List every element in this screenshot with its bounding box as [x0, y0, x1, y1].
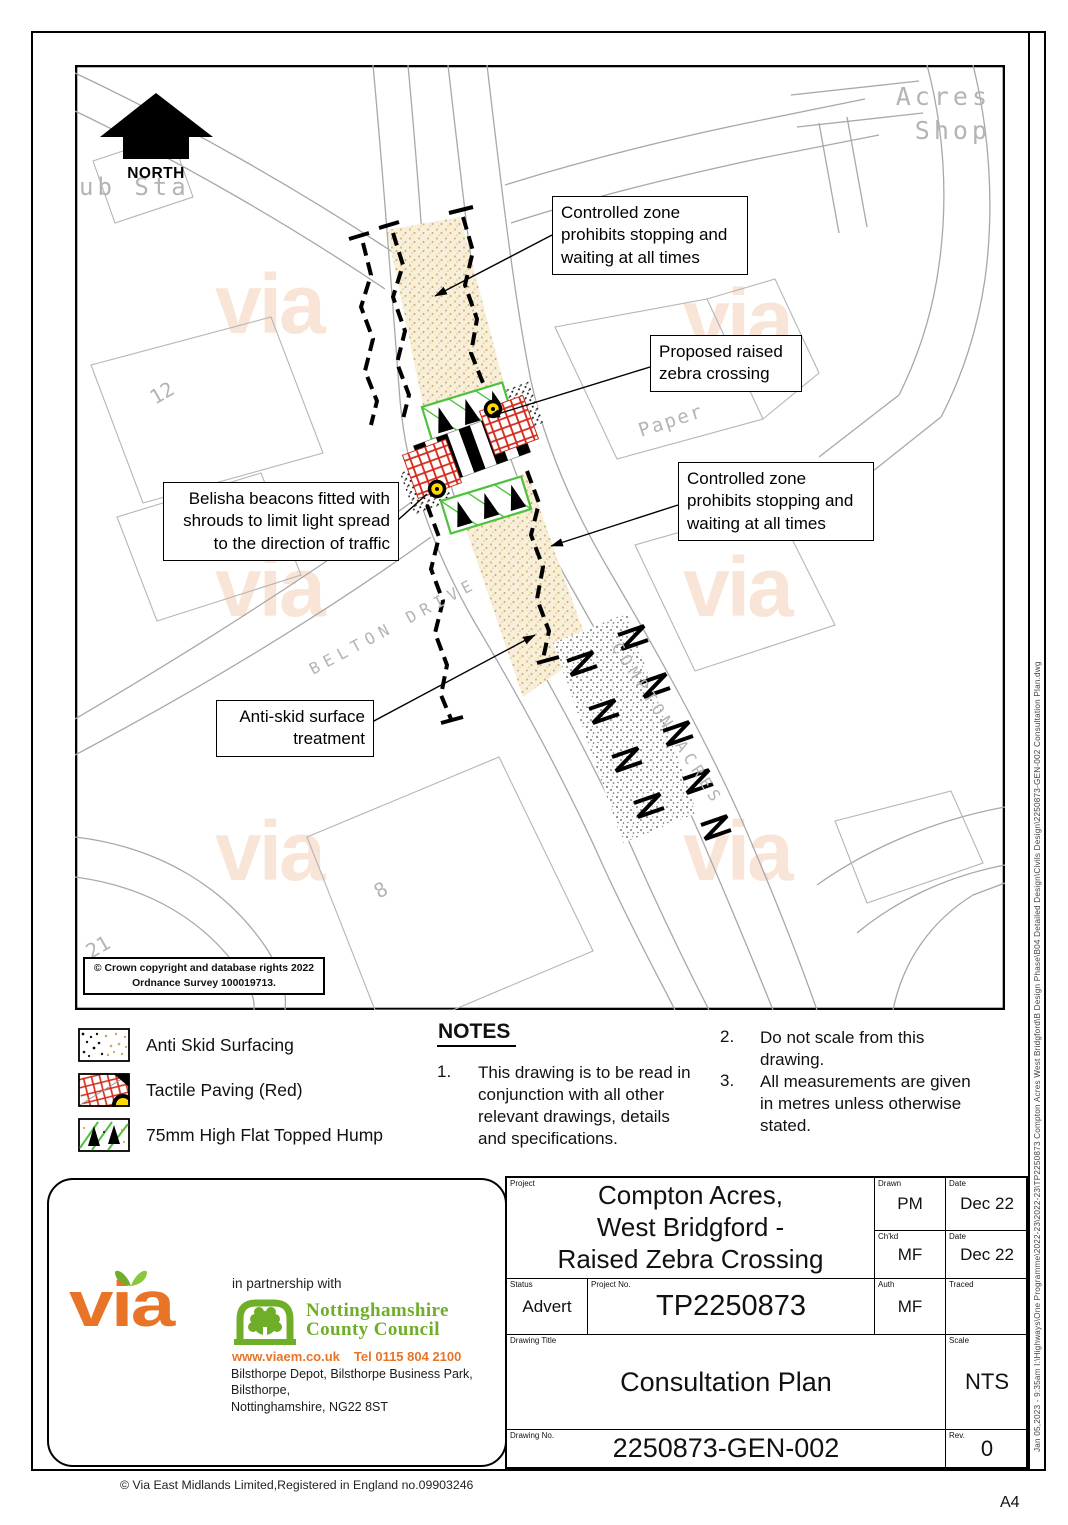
title-block-table: Project Compton Acres, West Bridgford - … [505, 1176, 1028, 1469]
flat-top-hump-swatch [78, 1118, 130, 1152]
via-leaf-icon [113, 1264, 149, 1288]
checked-date-cell: Date Dec 22 [945, 1230, 1028, 1278]
legend-label-tactile: Tactile Paving (Red) [146, 1080, 303, 1101]
scale-cell: Scale NTS [945, 1334, 1028, 1429]
address-block: Bilsthorpe Depot, Bilsthorpe Business Pa… [231, 1366, 505, 1415]
checked-cell: Ch'kd MF [874, 1230, 945, 1278]
os-copyright-line2: Ordnance Survey 100019713. [86, 976, 322, 991]
council-name-line2: County Council [306, 1319, 440, 1341]
status-cell: Status Advert [507, 1278, 587, 1334]
note-2-text: Do not scale from this drawing. [760, 1027, 986, 1071]
note-1-text: This drawing is to be read in conjunctio… [478, 1062, 700, 1150]
map-label-acres-2: Shop [915, 116, 991, 145]
drawn-cell: Drawn PM [874, 1178, 945, 1230]
checked-value: MF [875, 1231, 945, 1278]
auth-cell: Auth MF [874, 1278, 945, 1334]
drawn-date-cell: Date Dec 22 [945, 1178, 1028, 1230]
svg-text:via: via [683, 804, 795, 898]
drawn-date-value: Dec 22 [946, 1178, 1028, 1230]
partnership-text: in partnership with [232, 1276, 342, 1291]
status-value: Advert [507, 1279, 587, 1334]
drawing-no-cell: Drawing No. 2250873-GEN-002 [507, 1429, 945, 1467]
sheet-side-strip-line [1028, 31, 1030, 1471]
note-1-number: 1. [437, 1062, 451, 1082]
legend-item-anti-skid: Anti Skid Surfacing [78, 1028, 294, 1062]
note-3-text: All measurements are given in metres unl… [760, 1071, 986, 1137]
auth-value: MF [875, 1279, 945, 1334]
map-label-acres-1: Acres [896, 82, 991, 111]
anti-skid-swatch [78, 1028, 130, 1062]
callout-belisha-beacons: Belisha beacons fitted with shrouds to l… [163, 482, 399, 561]
telephone: Tel 0115 804 2100 [354, 1349, 461, 1364]
callout-controlled-zone-top: Controlled zone prohibits stopping and w… [552, 196, 748, 275]
callout-controlled-zone-bottom: Controlled zone prohibits stopping and w… [678, 462, 874, 541]
drawing-sheet: via via via via via via [0, 0, 1068, 1525]
page-size-label: A4 [1000, 1494, 1020, 1512]
tactile-paving-swatch [78, 1073, 130, 1107]
callout-anti-skid: Anti-skid surface treatment [216, 700, 374, 757]
svg-text:via: via [215, 257, 327, 351]
checked-date-value: Dec 22 [946, 1231, 1028, 1278]
drawing-title-cell: Drawing Title Consultation Plan [507, 1334, 945, 1429]
rev-value: 0 [946, 1430, 1028, 1467]
project-title: Compton Acres, West Bridgford - Raised Z… [558, 1180, 824, 1275]
contact-row: www.viaem.co.ukTel 0115 804 2100 [232, 1349, 475, 1364]
belisha-beacon-south [430, 482, 445, 497]
nottinghamshire-council-icon [232, 1297, 298, 1347]
traced-value [946, 1279, 1028, 1334]
legend-label-anti-skid: Anti Skid Surfacing [146, 1035, 294, 1056]
legend-label-hump: 75mm High Flat Topped Hump [146, 1125, 383, 1146]
website-link[interactable]: www.viaem.co.uk [232, 1349, 340, 1364]
notes-heading: NOTES [437, 1020, 516, 1047]
drawing-no-value: 2250873-GEN-002 [507, 1430, 945, 1467]
scale-value: NTS [946, 1335, 1028, 1429]
drawn-value: PM [875, 1178, 945, 1230]
traced-cell: Traced [945, 1278, 1028, 1334]
drawing-title-value: Consultation Plan [507, 1335, 945, 1429]
logo-panel: via in partnership with Nottinghamshire … [47, 1178, 507, 1467]
rev-cell: Rev. 0 [945, 1429, 1028, 1467]
note-3-number: 3. [720, 1071, 734, 1091]
footer-copyright: © Via East Midlands Limited,Registered i… [120, 1478, 473, 1492]
project-no-value: TP2250873 [588, 1279, 874, 1334]
north-arrow-label: NORTH [127, 165, 185, 182]
project-no-cell: Project No. TP2250873 [587, 1278, 874, 1334]
callout-proposed-crossing: Proposed raised zebra crossing [650, 335, 802, 392]
os-copyright-box: © Crown copyright and database rights 20… [83, 957, 325, 995]
svg-text:via: via [215, 804, 327, 898]
legend-item-tactile: Tactile Paving (Red) [78, 1073, 303, 1107]
svg-text:via: via [683, 540, 795, 634]
project-cell: Project Compton Acres, West Bridgford - … [507, 1178, 874, 1278]
legend-item-hump: 75mm High Flat Topped Hump [78, 1118, 383, 1152]
file-path-note: Jan 05,2023 - 9:35am I:\Highways\One Pro… [1033, 452, 1042, 1452]
os-copyright-line1: © Crown copyright and database rights 20… [86, 961, 322, 976]
note-2-number: 2. [720, 1027, 734, 1047]
